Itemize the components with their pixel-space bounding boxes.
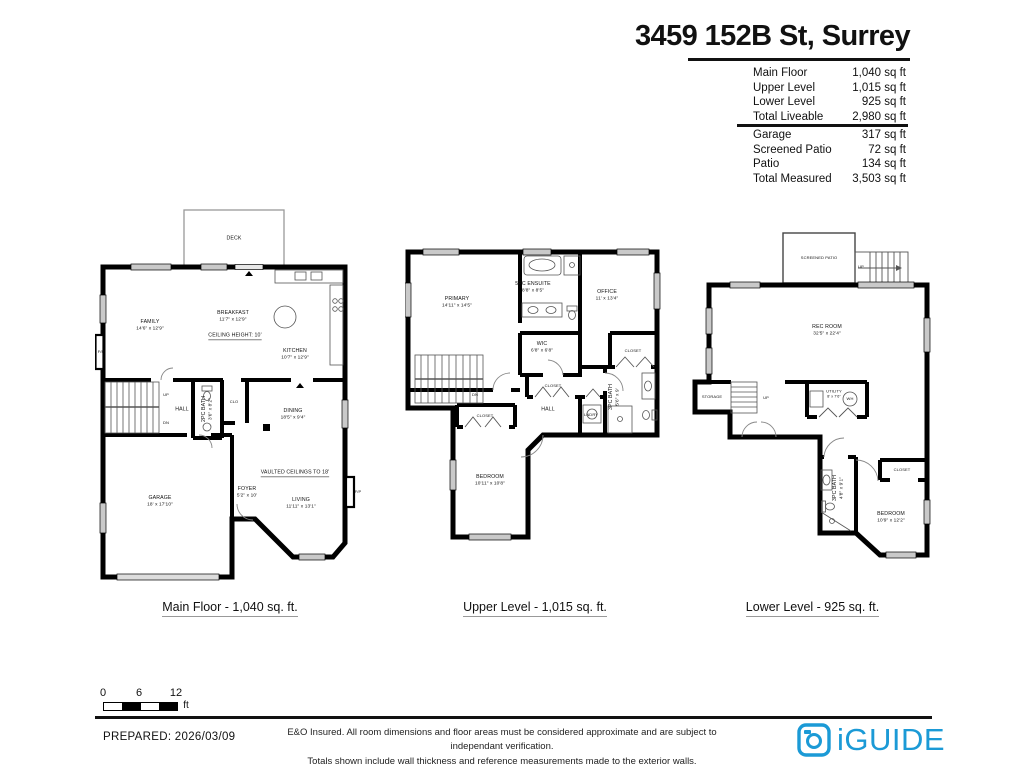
- room-label-breakfast: BREAKFAST11'7" x 12'9": [217, 310, 249, 323]
- stair-label-up: UP: [163, 392, 169, 397]
- room-label-lower-closet: CLOSET: [894, 467, 911, 472]
- room-label-2pc-bath: 2PC BATH3'6" x 8'2": [201, 396, 214, 422]
- room-label-lower-3pc-bath: 3PC BATH4'8" x 9'1": [832, 475, 845, 501]
- room-label-hall-closet: CLOSET: [545, 383, 562, 388]
- room-label-office-closet: CLOSET: [625, 348, 642, 353]
- upper-level-caption: Upper Level - 1,015 sq. ft.: [405, 600, 665, 614]
- room-label-wic: WIC6'8" x 6'8": [531, 341, 553, 354]
- summary-row: Garage317 sq ft: [753, 128, 906, 143]
- ceiling-height-note: CEILING HEIGHT: 10': [208, 332, 261, 340]
- summary-other: Garage317 sq ft Screened Patio72 sq ft P…: [753, 128, 906, 186]
- iguide-camera-icon: [797, 723, 831, 757]
- room-label-clo: CLO: [230, 399, 239, 404]
- summary-value: 134 sq ft: [862, 157, 906, 172]
- summary-value: 2,980 sq ft: [852, 110, 906, 125]
- summary-label: Total Measured: [753, 172, 832, 187]
- summary-label: Total Liveable: [753, 110, 823, 125]
- summary-label: Screened Patio: [753, 143, 832, 158]
- room-label-garage: GARAGE18' x 17'10": [147, 495, 173, 508]
- title-rule: [688, 58, 910, 61]
- room-label-bedroom-closet: CLOSET: [477, 413, 494, 418]
- scale-tick-12: 12: [170, 687, 182, 699]
- room-label-screened-patio: SCREENED PATIO: [801, 255, 837, 260]
- disclaimer: E&O Insured. All room dimensions and flo…: [262, 726, 742, 769]
- fireplace-label-left: F/P: [98, 349, 105, 354]
- lower-level-labels: SCREENED PATIO UP REC ROOM32'5" x 22'4" …: [690, 230, 935, 575]
- footer-divider: [95, 716, 932, 719]
- summary-divider: [737, 124, 908, 127]
- scale-unit: ft: [183, 700, 189, 711]
- summary-row: Patio134 sq ft: [753, 157, 906, 172]
- summary-value: 3,503 sq ft: [852, 172, 906, 187]
- iguide-logo: iGUIDE: [797, 722, 945, 758]
- scale-tick-0: 0: [100, 687, 106, 699]
- lower-level-caption: Lower Level - 925 sq. ft.: [690, 600, 935, 614]
- summary-row: Total Measured3,503 sq ft: [753, 172, 906, 187]
- prepared-date: PREPARED: 2026/03/09: [103, 731, 235, 743]
- scale-tick-6: 6: [136, 687, 142, 699]
- summary-value: 72 sq ft: [868, 143, 906, 158]
- summary-value: 317 sq ft: [862, 128, 906, 143]
- summary-label: Lower Level: [753, 95, 815, 110]
- room-label-lndry: LNDRY: [584, 412, 598, 417]
- disclaimer-line2: Totals shown include wall thickness and …: [262, 755, 742, 769]
- iguide-wordmark: iGUIDE: [837, 722, 945, 758]
- room-label-dining: DINING18'5" x 9'4": [281, 408, 306, 421]
- stair-label-lower-up: UP: [763, 395, 769, 400]
- room-label-family: FAMILY14'6" x 12'9": [136, 319, 164, 332]
- fireplace-label-right: F/P: [355, 489, 362, 494]
- summary-row: Main Floor1,040 sq ft: [753, 66, 906, 81]
- room-label-office: OFFICE11' x 13'4": [596, 289, 619, 302]
- room-label-utility: UTILITY8' x 7'6": [826, 389, 842, 399]
- summary-row: Screened Patio72 sq ft: [753, 143, 906, 158]
- water-heater-label: WH: [847, 396, 854, 401]
- summary-row: Upper Level1,015 sq ft: [753, 81, 906, 96]
- room-label-lower-bedroom: BEDROOM10'9" x 12'2": [877, 511, 905, 524]
- stair-label-dn: DN: [163, 420, 169, 425]
- summary-row: Total Liveable2,980 sq ft: [753, 110, 906, 125]
- room-label-deck: DECK: [227, 235, 242, 242]
- summary-row: Lower Level925 sq ft: [753, 95, 906, 110]
- room-label-3pc-bath: 3PC BATH5'6" x 9': [608, 384, 621, 410]
- vaulted-ceiling-note: VAULTED CEILINGS TO 18': [261, 469, 330, 477]
- room-label-rec-room: REC ROOM32'5" x 22'4": [812, 324, 842, 337]
- scale-bar-segments: [103, 702, 178, 711]
- summary-label: Main Floor: [753, 66, 807, 81]
- stair-label-upper-dn: DN: [472, 392, 478, 397]
- stair-label-patio-up: UP: [858, 264, 864, 269]
- room-label-hall: HALL: [175, 406, 189, 413]
- main-floor-caption: Main Floor - 1,040 sq. ft.: [95, 600, 365, 614]
- summary-value: 925 sq ft: [862, 95, 906, 110]
- page-title: 3459 152B St, Surrey: [600, 20, 910, 53]
- summary-label: Garage: [753, 128, 791, 143]
- room-label-kitchen: KITCHEN10'7" x 12'9": [281, 348, 309, 361]
- summary-label: Patio: [753, 157, 779, 172]
- room-label-ensuite: 5PC ENSUITE8'8" x 8'5": [515, 281, 551, 294]
- room-label-primary: PRIMARY14'11" x 14'5": [442, 296, 472, 309]
- room-label-storage: STORAGE: [702, 394, 722, 399]
- room-label-upper-bedroom: BEDROOM10'11" x 10'8": [475, 474, 505, 487]
- summary-value: 1,015 sq ft: [852, 81, 906, 96]
- room-label-upper-hall: HALL: [541, 406, 555, 413]
- room-label-living: LIVING11'11" x 13'1": [286, 497, 316, 510]
- disclaimer-line1: E&O Insured. All room dimensions and flo…: [262, 726, 742, 755]
- room-label-foyer: FOYER5'2" x 10': [237, 486, 257, 499]
- main-floor-labels: DECK FAMILY14'6" x 12'9" BREAKFAST11'7" …: [95, 205, 365, 595]
- upper-level-labels: PRIMARY14'11" x 14'5" 5PC ENSUITE8'8" x …: [405, 245, 665, 600]
- summary-liveable: Main Floor1,040 sq ft Upper Level1,015 s…: [753, 66, 906, 124]
- summary-value: 1,040 sq ft: [852, 66, 906, 81]
- summary-label: Upper Level: [753, 81, 815, 96]
